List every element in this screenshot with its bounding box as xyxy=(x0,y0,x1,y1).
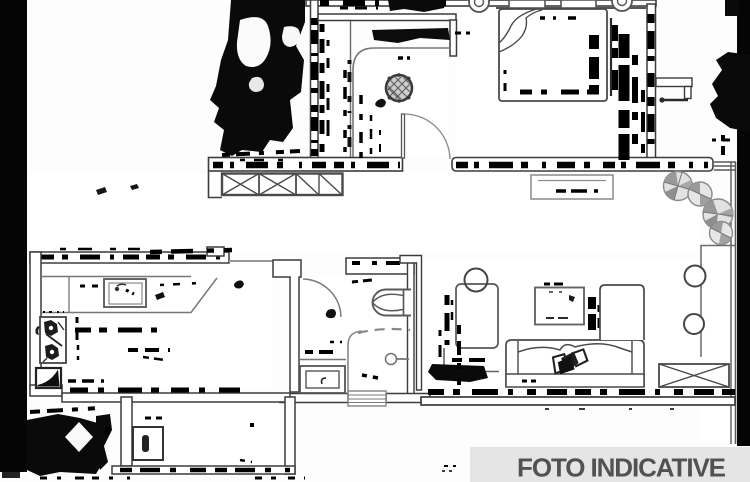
svg-text:FOTO INDICATIVE: FOTO INDICATIVE xyxy=(517,453,726,482)
